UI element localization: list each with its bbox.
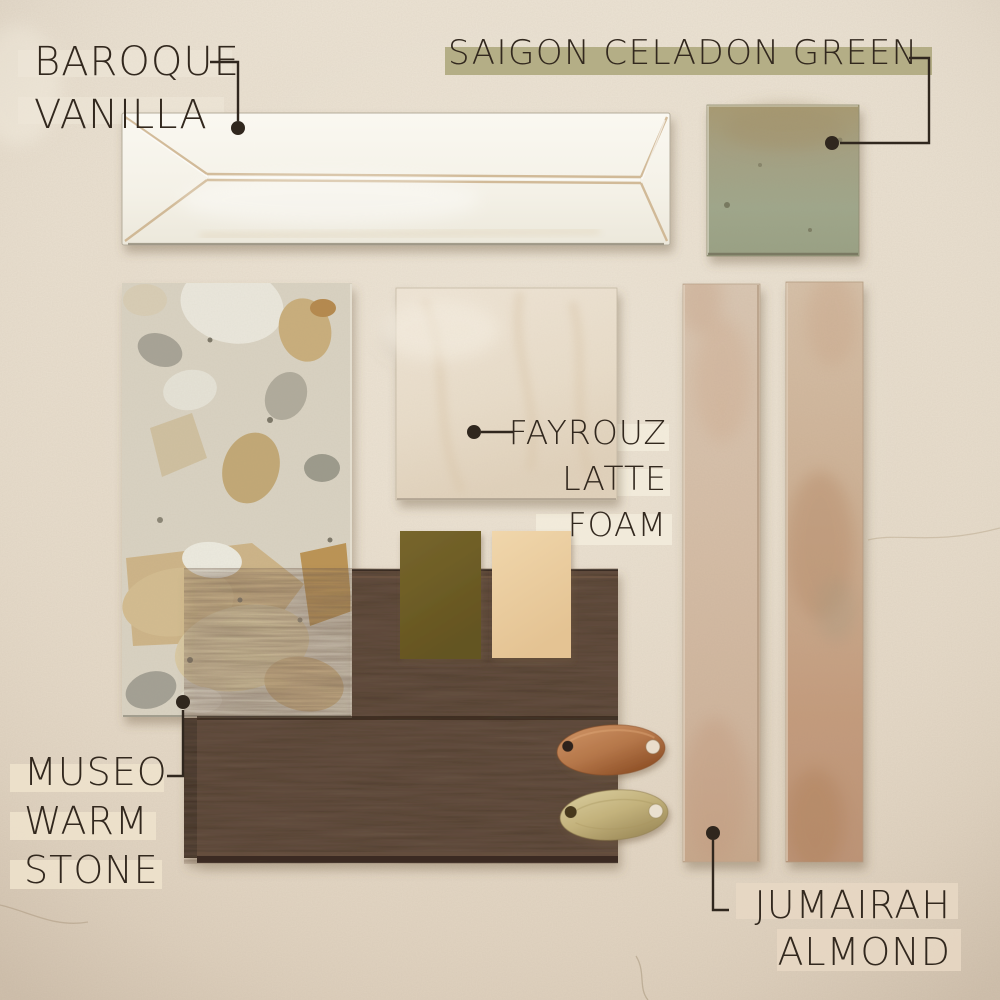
tag-hole <box>646 739 661 754</box>
saigon-celadon-green-label-line1: SAIGON CELADON GREEN <box>448 36 919 70</box>
baroque-vanilla-label: BAROQUE VANILLA <box>34 36 240 142</box>
almond-tile-left <box>678 266 760 862</box>
jumairah-connector-dot <box>706 826 720 840</box>
fayrouz-connector-dot <box>467 425 481 439</box>
olive-paint-chip <box>400 531 481 659</box>
saigon-celadon-tile <box>707 105 859 256</box>
museo-connector-dot <box>176 695 190 709</box>
saigon-celadon-green-label: SAIGON CELADON GREEN <box>448 36 919 70</box>
jumairah-label-line1: JUMAIRAH <box>755 882 951 929</box>
jumairah-almond-label: JUMAIRAH ALMOND <box>755 882 951 976</box>
museo-label-line2: WARM <box>24 797 168 846</box>
fayrouz-label-line2: LATTE <box>509 456 667 502</box>
saigon-connector-dot <box>825 136 839 150</box>
cream-paint-chip <box>492 531 571 658</box>
museo-label-line3: STONE <box>24 846 168 895</box>
baroque-vanilla-label-line2: VANILLA <box>34 89 240 142</box>
tag-hole <box>648 804 663 819</box>
fayrouz-label-line1: FAYROUZ <box>509 410 667 456</box>
museo-warm-stone-label: MUSEO WARM STONE <box>24 748 168 895</box>
jumairah-label-line2: ALMOND <box>755 929 951 976</box>
baroque-vanilla-label-line1: BAROQUE <box>34 36 240 89</box>
fayrouz-latte-foam-label: FAYROUZ LATTE FOAM <box>509 410 667 548</box>
almond-tile-right <box>785 274 863 872</box>
moodboard: BAROQUE VANILLA SAIGON CELADON GREEN FAY… <box>0 0 1000 1000</box>
museo-label-line1: MUSEO <box>24 748 168 797</box>
fayrouz-label-line3: FOAM <box>509 502 667 548</box>
